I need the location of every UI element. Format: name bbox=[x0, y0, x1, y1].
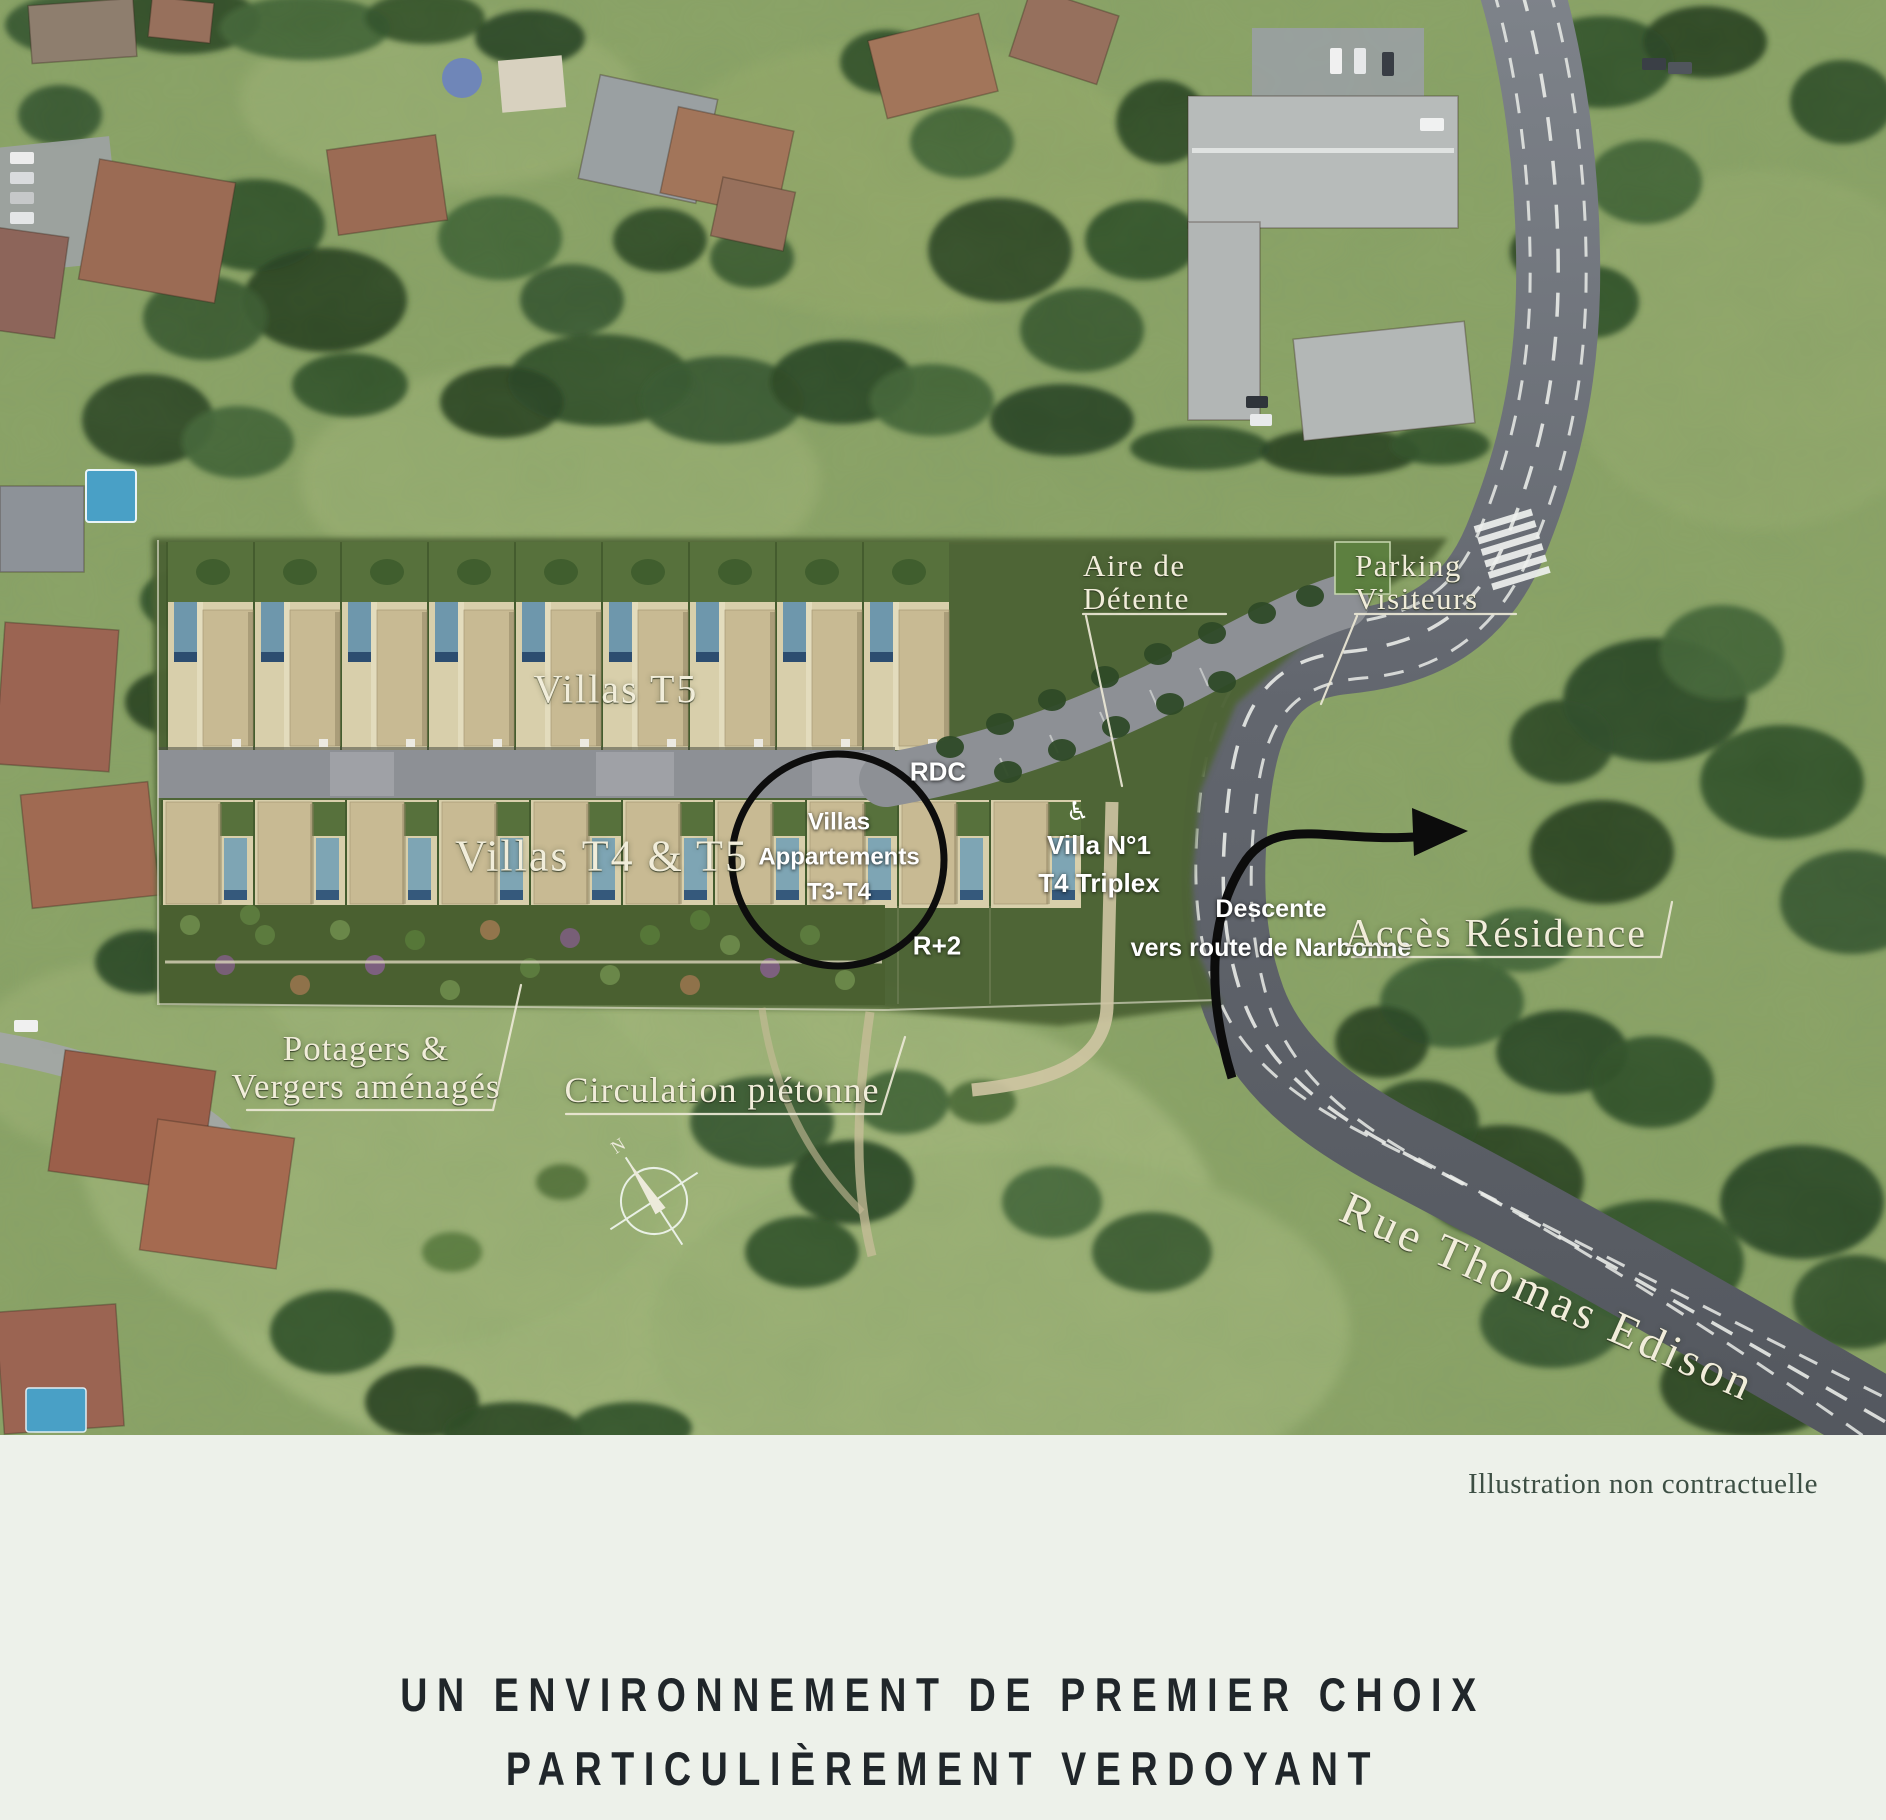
label-line: Vergers aménagés bbox=[232, 1068, 501, 1106]
label-line: Villa N°1 bbox=[1038, 826, 1159, 864]
label-villas-t4-t5: Villas T4 & T5 bbox=[455, 831, 749, 882]
label-potagers-vergers: Potagers & Vergers aménagés bbox=[232, 1030, 501, 1106]
title-line-2: PARTICULIÈREMENT VERDOYANT bbox=[189, 1732, 1698, 1806]
label-line: Villas bbox=[758, 805, 919, 840]
villa-lots-t5 bbox=[167, 542, 949, 750]
potagers-strip bbox=[160, 905, 885, 1005]
brochure-page: ♿ N Aire de Détente Parking bbox=[0, 0, 1886, 1820]
label-line: Aire de bbox=[1083, 549, 1190, 582]
label-r-plus-2: R+2 bbox=[913, 931, 961, 962]
label-line: T3-T4 bbox=[758, 875, 919, 910]
label-villas-appartements: Villas Appartements T3-T4 bbox=[758, 805, 919, 910]
label-circulation-pietonne: Circulation piétonne bbox=[565, 1069, 880, 1111]
label-line: Appartements bbox=[758, 840, 919, 875]
label-aire-de-detente: Aire de Détente bbox=[1083, 549, 1190, 615]
handicap-parking-icon: ♿ bbox=[1066, 797, 1089, 827]
label-line: Visiteurs bbox=[1355, 582, 1479, 615]
internal-road bbox=[158, 750, 895, 798]
building-ridge-line bbox=[1192, 148, 1454, 153]
label-villas-t5: Villas T5 bbox=[534, 666, 699, 713]
aerial-site-plan: ♿ N bbox=[0, 0, 1886, 1435]
title-line-1: UN ENVIRONNEMENT DE PREMIER CHOIX bbox=[189, 1658, 1698, 1732]
label-line: Détente bbox=[1083, 582, 1190, 615]
label-line: Parking bbox=[1355, 549, 1479, 582]
label-acces-residence: Accès Résidence bbox=[1345, 910, 1647, 957]
disclaimer-note: Illustration non contractuelle bbox=[1468, 1468, 1818, 1501]
label-parking-visiteurs: Parking Visiteurs bbox=[1355, 549, 1479, 615]
label-line: Potagers & bbox=[232, 1030, 501, 1068]
page-title: UN ENVIRONNEMENT DE PREMIER CHOIX PARTIC… bbox=[0, 1658, 1886, 1806]
label-rdc: RDC bbox=[910, 757, 966, 788]
